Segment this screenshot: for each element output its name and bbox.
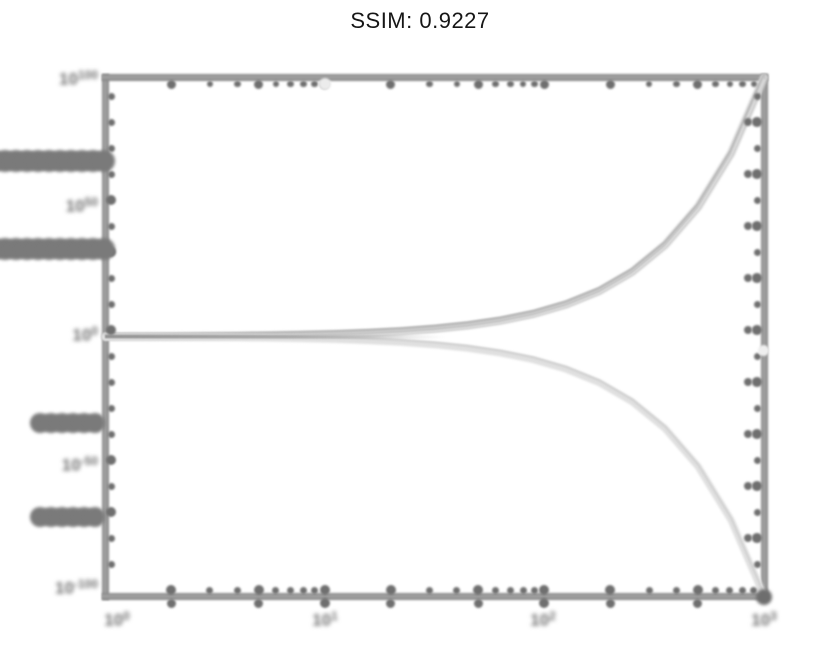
y-tick-dot-left [108, 223, 115, 230]
blur-bar-blob [85, 413, 105, 433]
y-tick-dot-right-pair [744, 118, 752, 126]
y-tick-label: 10100 [59, 67, 98, 90]
curve-exponential-decay [105, 337, 764, 596]
y-tick-dot-left [108, 353, 115, 360]
x-minor-tick-dot [693, 585, 703, 595]
x-minor-tick-dot [646, 587, 653, 594]
x-minor-tick-dot [254, 585, 264, 595]
y-tick-dot-right-pair [744, 378, 752, 386]
curve-exponential-decay-strand [105, 335, 764, 594]
x-minor-tick-dot-top [254, 80, 263, 89]
x-minor-tick-dot [606, 599, 615, 608]
y-tick-dot-left [106, 195, 116, 205]
x-minor-tick-dot-top [234, 81, 241, 88]
x-minor-tick-dot-top [693, 80, 702, 89]
x-minor-tick-dot [712, 587, 719, 594]
y-tick-dot-right-pair [744, 170, 752, 178]
y-tick-dot-right [752, 429, 762, 439]
curve-exponential-growth [105, 78, 764, 337]
x-minor-tick-dot-top [474, 80, 483, 89]
y-tick-dot-right [752, 325, 762, 335]
x-tick-label: 102 [513, 608, 573, 631]
x-minor-tick-dot [531, 587, 538, 594]
y-tick-dot-right [752, 377, 762, 387]
y-tick-dot-left [106, 325, 116, 335]
y-tick-dot-left [108, 431, 115, 438]
x-minor-tick-dot-top [531, 81, 538, 88]
x-minor-tick-dot [311, 587, 318, 594]
x-minor-tick-dot [507, 587, 514, 594]
x-minor-tick-dot [206, 587, 213, 594]
x-minor-tick-dot-top [167, 80, 176, 89]
x-minor-tick-dot-top [287, 81, 294, 88]
y-tick-dot-right [754, 457, 761, 464]
x-minor-tick-dot [234, 587, 241, 594]
x-major-tick-dot [320, 598, 330, 608]
x-minor-tick-dot-top [492, 81, 499, 88]
y-tick-label: 10-100 [55, 576, 98, 599]
y-tick-dot-right-pair [744, 534, 752, 542]
y-tick-dot-left [108, 379, 115, 386]
y-tick-dot-right [752, 221, 762, 231]
x-minor-tick-dot [453, 587, 460, 594]
y-tick-dot-left [108, 171, 115, 178]
x-minor-tick-dot [386, 585, 396, 595]
y-tick-dot-left [108, 483, 115, 490]
y-tick-dot-right [754, 509, 761, 516]
x-minor-tick-dot [300, 587, 307, 594]
curve-overlap-segment [105, 337, 445, 338]
x-major-tick-dot-top [540, 80, 549, 89]
y-tick-dot-left [108, 535, 115, 542]
x-minor-tick-dot [492, 587, 499, 594]
x-minor-tick-dot [739, 587, 746, 594]
y-tick-dot-right [754, 145, 761, 152]
y-tick-dot-right [754, 405, 761, 412]
x-minor-tick-dot-top [673, 81, 680, 88]
x-minor-tick-dot [386, 599, 395, 608]
y-tick-dot-left [108, 119, 115, 126]
x-minor-tick-dot [673, 587, 680, 594]
y-tick-dot-right-pair [744, 430, 752, 438]
x-major-tick-highlight [319, 78, 331, 90]
y-tick-label: 10-50 [62, 453, 98, 476]
x-minor-tick-dot-top [311, 81, 318, 88]
y-tick-dot-left [106, 455, 116, 465]
y-tick-dot-left [108, 275, 115, 282]
y-tick-dot-right [752, 533, 762, 543]
y-tick-dot-right-pair [744, 482, 752, 490]
x-minor-tick-dot [474, 599, 483, 608]
x-minor-tick-dot [167, 599, 176, 608]
y-tick-dot-right-pair [744, 274, 752, 282]
curve-exponential-growth-strand [105, 78, 764, 337]
y-tick-dot-right [752, 273, 762, 283]
x-minor-tick-dot-top [386, 80, 395, 89]
x-minor-tick-dot-top [712, 81, 719, 88]
x-minor-tick-dot [272, 587, 279, 594]
y-tick-dot-left [108, 301, 115, 308]
x-major-tick-dot [320, 585, 330, 595]
y-tick-dot-right [754, 249, 761, 256]
y-tick-dot-left [108, 93, 115, 100]
plot-area [0, 0, 840, 664]
x-minor-tick-dot [254, 599, 263, 608]
blur-bar-blob [85, 507, 105, 527]
x-minor-tick-dot-top [426, 81, 433, 88]
x-tick-label: 100 [87, 608, 147, 631]
y-tick-dot-left [108, 405, 115, 412]
y-tick-dot-right [754, 197, 761, 204]
y-tick-label: 100 [72, 323, 98, 346]
y-tick-dot-right [754, 93, 761, 100]
y-tick-label: 1050 [66, 194, 98, 217]
blur-bar-blob [93, 238, 115, 260]
x-minor-tick-dot [520, 587, 527, 594]
y-tick-dot-right-pair [744, 326, 752, 334]
x-minor-tick-dot-top [606, 80, 615, 89]
blur-bar-blob [93, 150, 115, 172]
x-minor-tick-dot [287, 587, 294, 594]
y-tick-dot-left [108, 561, 115, 568]
y-tick-dot-right [754, 561, 761, 568]
x-minor-tick-dot [693, 599, 702, 608]
figure: SSIM: 0.9227 10100105010010-5010-1001001… [0, 0, 840, 664]
curve-exponential-growth-strand [105, 80, 764, 339]
y-tick-dot-right-pair [744, 222, 752, 230]
y-tick-dot-right [754, 301, 761, 308]
x-tick-label: 103 [734, 608, 794, 631]
x-minor-tick-dot-top [507, 81, 514, 88]
x-minor-tick-dot-top [300, 81, 307, 88]
x-tick-label: 101 [295, 608, 355, 631]
y-tick-dot-right [752, 481, 762, 491]
y-tick-highlight [758, 345, 769, 356]
x-minor-tick-dot [426, 587, 433, 594]
curve-exponential-growth-strand [105, 75, 764, 334]
y-tick-dot-right [752, 117, 762, 127]
y-tick-dot-right [752, 169, 762, 179]
y-tick-dot-left [106, 507, 116, 517]
corner-blob [756, 589, 772, 605]
